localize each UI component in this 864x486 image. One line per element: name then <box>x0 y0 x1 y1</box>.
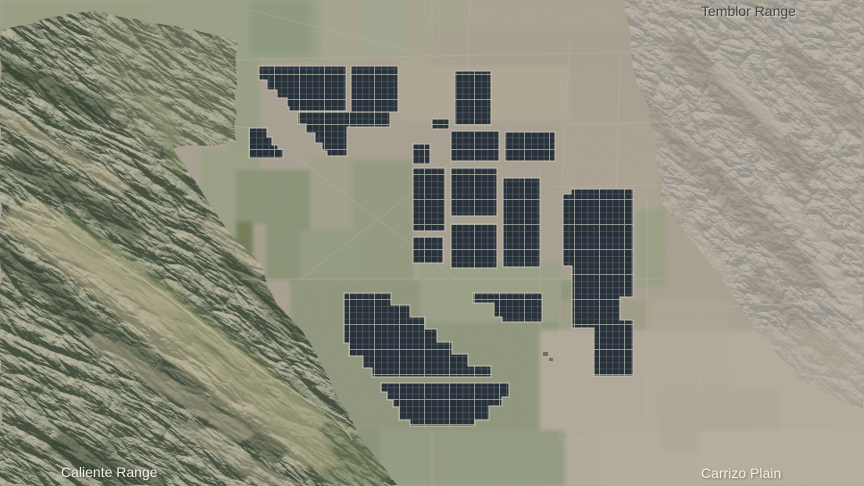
svg-text:Carrizo Plain: Carrizo Plain <box>701 465 781 481</box>
svg-text:Temblor Range: Temblor Range <box>701 3 796 19</box>
svg-text:Caliente Range: Caliente Range <box>61 464 158 480</box>
